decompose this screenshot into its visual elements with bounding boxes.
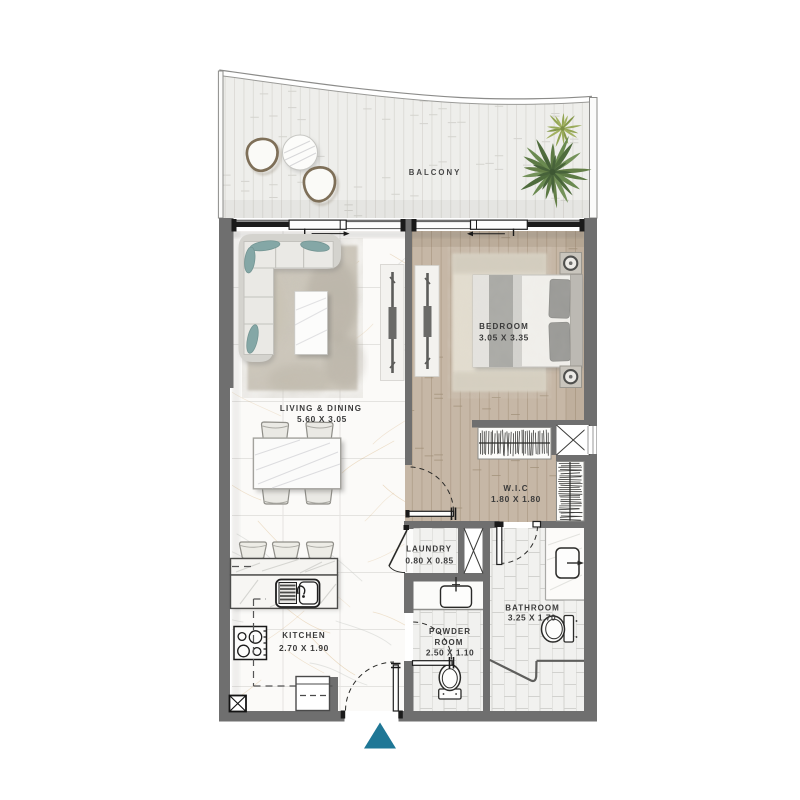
svg-text:1.80 X 1.80: 1.80 X 1.80: [491, 494, 541, 504]
svg-text:POWDER: POWDER: [429, 627, 471, 636]
svg-text:BALCONY: BALCONY: [409, 168, 462, 177]
svg-text:W.I.C: W.I.C: [503, 484, 528, 493]
svg-text:ROOM: ROOM: [435, 638, 464, 647]
svg-text:5.60 X 3.05: 5.60 X 3.05: [297, 414, 347, 424]
svg-text:LIVING & DINING: LIVING & DINING: [280, 404, 362, 413]
svg-text:LAUNDRY: LAUNDRY: [406, 545, 452, 554]
svg-text:2.50 X 1.10: 2.50 X 1.10: [426, 648, 474, 658]
svg-text:0.80 X 0.85: 0.80 X 0.85: [405, 556, 453, 566]
svg-text:BEDROOM: BEDROOM: [479, 322, 529, 331]
svg-text:BATHROOM: BATHROOM: [505, 604, 560, 613]
svg-text:3.25 X 1.70: 3.25 X 1.70: [508, 613, 556, 623]
svg-text:2.70 X 1.90: 2.70 X 1.90: [279, 643, 329, 653]
svg-text:3.05 X 3.35: 3.05 X 3.35: [479, 333, 529, 343]
svg-text:KITCHEN: KITCHEN: [282, 631, 326, 640]
